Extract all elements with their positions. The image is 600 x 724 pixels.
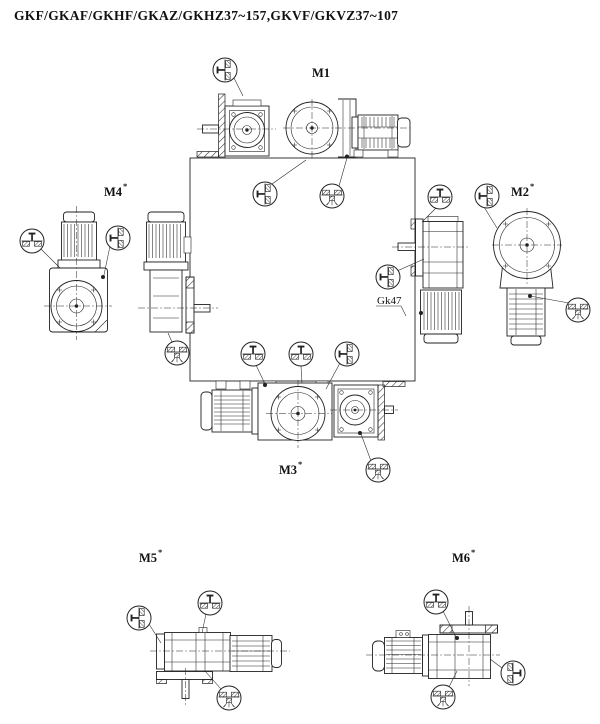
oil-drain-down-icon — [165, 341, 189, 365]
unit-m3-front-view — [258, 380, 332, 448]
oil-level-left-icon — [127, 606, 151, 630]
oil-level-right-icon — [501, 661, 525, 685]
svg-text:M3: M3 — [279, 463, 297, 477]
label-m2: M2 * — [511, 181, 534, 199]
oil-level-left-icon — [253, 182, 277, 206]
svg-text:M6: M6 — [452, 551, 470, 565]
svg-text:M5: M5 — [139, 551, 157, 565]
oil-level-up-icon — [424, 590, 448, 614]
oil-drain-down-icon — [366, 458, 390, 482]
oil-drain-down-icon — [320, 184, 344, 208]
oil-level-up-icon — [241, 342, 265, 366]
svg-text:*: * — [123, 181, 127, 191]
oil-drain-down-icon — [431, 685, 455, 709]
catalog-page: GKF/GKAF/GKHF/GKAZ/GKHZ37~157,GKVF/GKVZ3… — [0, 0, 600, 724]
unit-m4-side-view — [138, 212, 218, 333]
unit-m4-front-view — [44, 206, 112, 340]
svg-text:*: * — [298, 459, 302, 469]
oil-level-up-icon — [428, 185, 452, 209]
svg-text:M2: M2 — [511, 185, 529, 199]
svg-text:M1: M1 — [312, 66, 330, 80]
oil-level-up-icon — [289, 342, 313, 366]
unit-m3-motor-view — [201, 381, 258, 434]
oil-drain-down-icon — [566, 298, 590, 322]
oil-level-up-icon — [20, 229, 44, 253]
label-m6: M6 * — [452, 547, 475, 565]
label-m4: M4 * — [104, 181, 127, 199]
unit-m1-front-view — [283, 99, 410, 158]
label-gk47: Gk47 — [376, 295, 406, 316]
svg-text:*: * — [471, 547, 475, 557]
oil-level-left-icon — [376, 265, 400, 289]
oil-level-left-icon — [335, 342, 359, 366]
oil-level-left-icon — [106, 226, 130, 250]
oil-level-up-icon — [198, 591, 222, 615]
unit-m2-side-view — [392, 217, 468, 344]
mounting-positions-diagram: GKF/GKAF/GKHF/GKAZ/GKHZ37~157,GKVF/GKVZ3… — [0, 0, 600, 724]
oil-level-left-icon — [475, 184, 499, 208]
label-m1: M1 — [312, 66, 330, 80]
unit-m1-side-view — [197, 94, 276, 157]
unit-m3-side-view — [330, 382, 405, 441]
svg-text:*: * — [158, 547, 162, 557]
svg-text:*: * — [530, 181, 534, 191]
unit-m2-front-view — [492, 208, 562, 345]
oil-level-left-icon — [213, 58, 237, 82]
unit-m6-assembly — [366, 606, 500, 686]
svg-text:Gk47: Gk47 — [377, 295, 402, 307]
page-title: GKF/GKAF/GKHF/GKAZ/GKHZ37~157,GKVF/GKVZ3… — [14, 8, 398, 23]
label-m5: M5 * — [139, 547, 162, 565]
svg-text:M4: M4 — [104, 185, 123, 199]
label-m3: M3 * — [279, 459, 302, 477]
oil-drain-down-icon — [217, 686, 241, 710]
